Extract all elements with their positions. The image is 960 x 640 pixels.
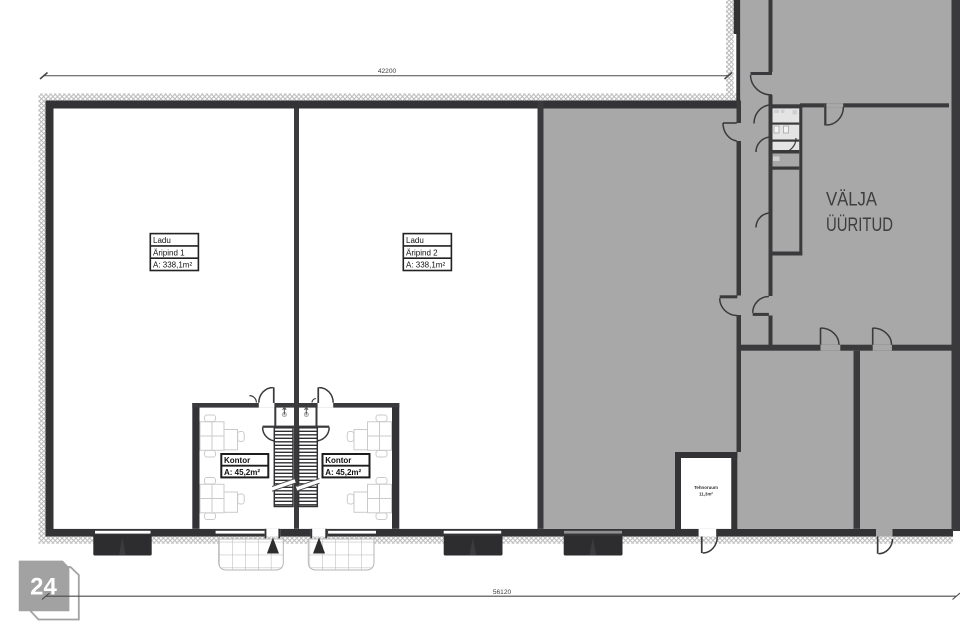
- svg-text:Kontor: Kontor: [325, 456, 351, 465]
- svg-text:56120: 56120: [493, 589, 512, 596]
- svg-text:A: 45,2m²: A: 45,2m²: [224, 468, 260, 477]
- svg-text:A: 338,1m²: A: 338,1m²: [153, 261, 192, 270]
- svg-text:A: 45,2m²: A: 45,2m²: [325, 468, 361, 477]
- svg-text:Ladu: Ladu: [153, 236, 171, 245]
- svg-text:Ladu: Ladu: [406, 236, 424, 245]
- svg-text:Äripind 2: Äripind 2: [406, 248, 438, 257]
- svg-text:VÄLJA: VÄLJA: [826, 189, 877, 211]
- svg-text:11,3m²: 11,3m²: [699, 492, 713, 497]
- svg-text:42200: 42200: [378, 68, 397, 75]
- svg-text:Tehnoruum: Tehnoruum: [694, 485, 718, 490]
- svg-text:Äripind 1: Äripind 1: [153, 248, 185, 257]
- svg-text:ÜÜRITUD: ÜÜRITUD: [826, 214, 893, 236]
- svg-text:Kontor: Kontor: [224, 456, 250, 465]
- svg-text:A: 338,1m²: A: 338,1m²: [406, 261, 445, 270]
